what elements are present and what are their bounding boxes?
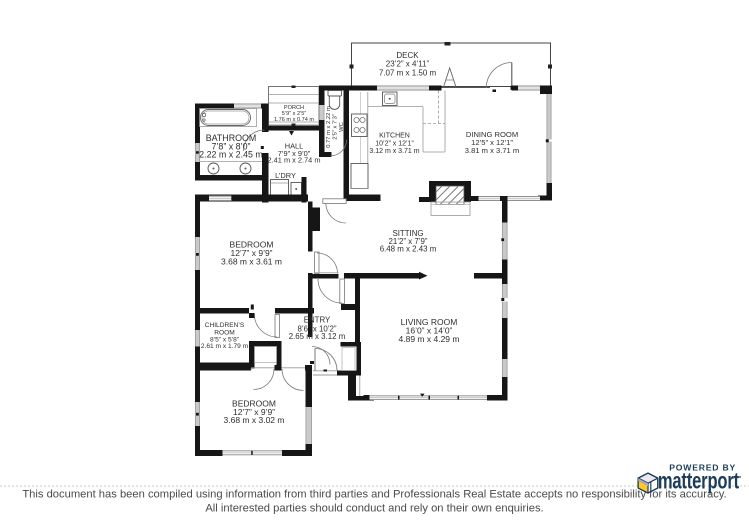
svg-text:This document has been compile: This document has been compiled using in… (22, 489, 726, 501)
svg-text:L’DRY: L’DRY (275, 171, 296, 180)
svg-text:KITCHEN: KITCHEN (379, 133, 410, 140)
svg-text:3.81 m x 3.71 m: 3.81 m x 3.71 m (465, 146, 519, 155)
svg-text:7.07 m x 1.50 m: 7.07 m x 1.50 m (379, 69, 437, 78)
svg-text:4.89 m x 4.29 m: 4.89 m x 4.29 m (399, 334, 460, 344)
svg-text:2’5” x 7’3”: 2’5” x 7’3” (333, 114, 339, 140)
svg-text:All interested parties should: All interested parties should conduct an… (205, 503, 543, 515)
svg-text:10’2” x 12’1”: 10’2” x 12’1” (375, 141, 414, 148)
svg-text:3.68 m x 3.02 m: 3.68 m x 3.02 m (224, 415, 285, 425)
svg-text:2.22 m x 2.45 m: 2.22 m x 2.45 m (199, 150, 263, 160)
svg-text:2.61 m x 1.79 m: 2.61 m x 1.79 m (201, 343, 249, 350)
svg-text:WC: WC (339, 122, 345, 132)
svg-text:matterport: matterport (658, 469, 740, 494)
svg-text:ENTRY: ENTRY (304, 315, 331, 324)
svg-text:3.68 m x 3.61 m: 3.68 m x 3.61 m (221, 257, 282, 267)
svg-text:2.41 m x 2.74 m: 2.41 m x 2.74 m (268, 156, 321, 165)
svg-text:CHILDREN’S: CHILDREN’S (205, 322, 245, 329)
svg-text:3.12 m x 3.71 m: 3.12 m x 3.71 m (369, 148, 419, 155)
svg-text:6.48 m x 2.43 m: 6.48 m x 2.43 m (380, 245, 437, 254)
svg-text:1.76 m x 0.74 m: 1.76 m x 0.74 m (274, 117, 314, 123)
svg-text:2.65 m x 3.12 m: 2.65 m x 3.12 m (289, 332, 346, 341)
svg-text:23’2” x 4’11”: 23’2” x 4’11” (386, 60, 430, 69)
svg-text:0.77 m x 2.22 m: 0.77 m x 2.22 m (326, 106, 332, 148)
